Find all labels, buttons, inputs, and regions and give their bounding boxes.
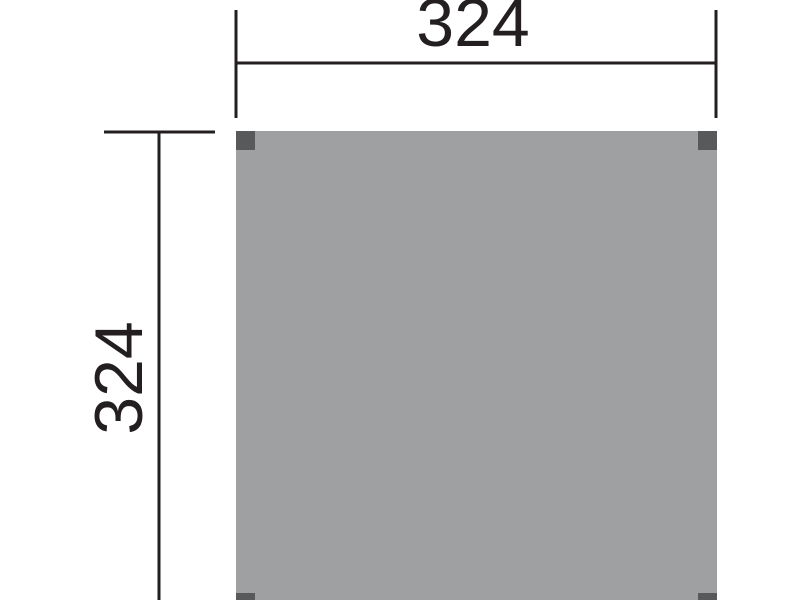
dim-top-label: 324 [416,0,529,61]
dim-left-label: 324 [81,321,157,434]
post-top-left [236,131,255,150]
post-bottom-right [698,593,717,600]
post-top-right [698,131,717,150]
floor-plan-diagram: 324 324 [0,0,800,600]
dimension-top: 324 [236,0,717,118]
post-bottom-left [236,593,255,600]
dimension-drawing: 324 324 [0,0,800,600]
panel-square [236,131,717,600]
dimension-left: 324 [81,131,215,600]
